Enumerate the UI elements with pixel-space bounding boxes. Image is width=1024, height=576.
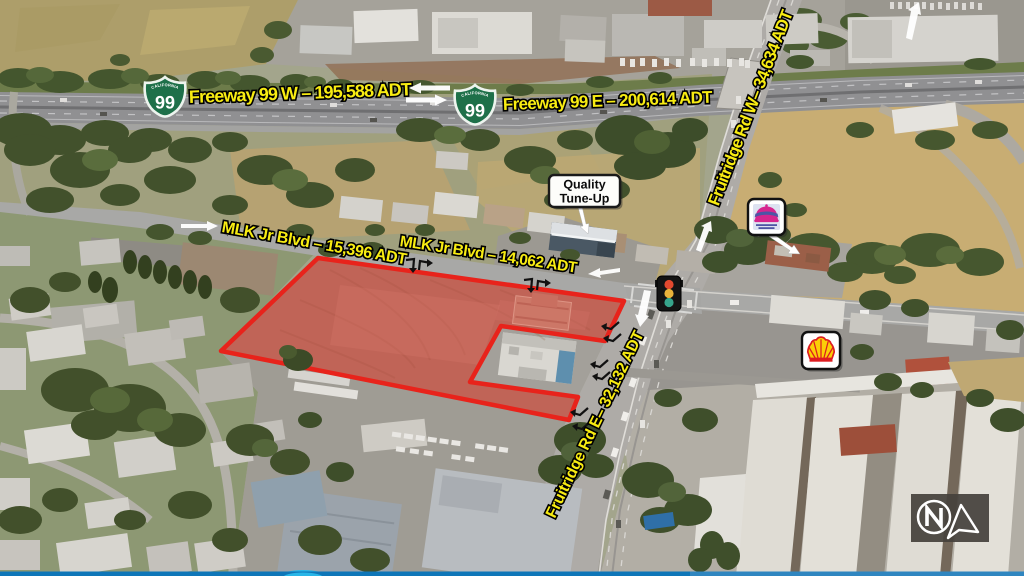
svg-text:99: 99 bbox=[465, 101, 485, 121]
svg-text:99: 99 bbox=[155, 93, 175, 113]
svg-text:Tune-Up: Tune-Up bbox=[560, 192, 610, 206]
svg-text:Quality: Quality bbox=[563, 178, 605, 192]
